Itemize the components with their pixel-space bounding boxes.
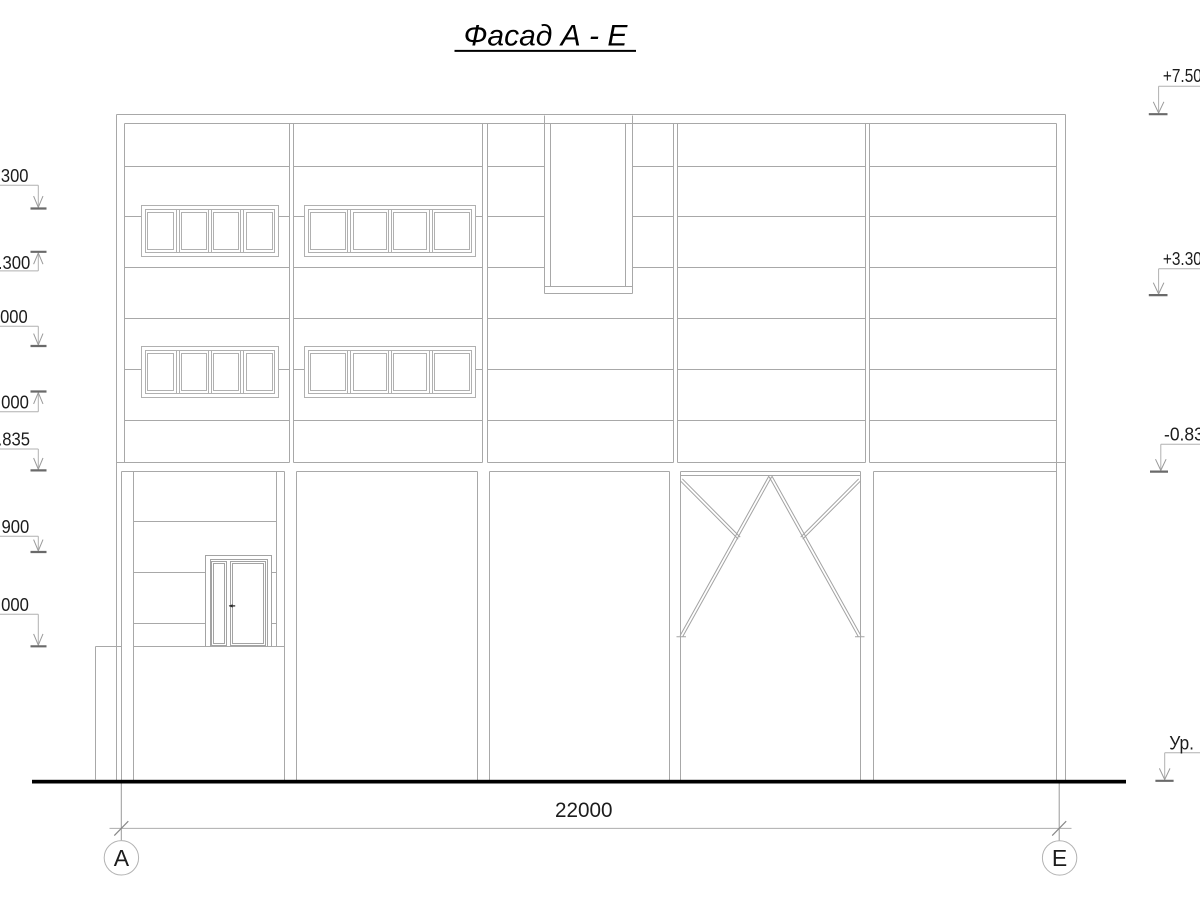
svg-text:Е: Е: [1052, 845, 1067, 871]
svg-text:.835: .835: [0, 430, 30, 450]
svg-text:+7.500: +7.500: [1163, 66, 1200, 86]
svg-text:300: 300: [1, 166, 29, 186]
svg-text:А: А: [114, 845, 130, 871]
svg-text:.900: .900: [0, 517, 29, 537]
svg-text:.300: .300: [0, 253, 30, 273]
svg-text:-0.835: -0.835: [1164, 424, 1200, 444]
svg-text:.000: .000: [0, 393, 29, 413]
svg-text:.000: .000: [0, 595, 29, 615]
svg-text:000: 000: [0, 307, 28, 327]
svg-text:+3.300: +3.300: [1163, 249, 1200, 269]
svg-text:22000: 22000: [555, 798, 613, 822]
svg-text:Ур.: Ур.: [1169, 733, 1194, 754]
svg-text:Фасад А - Е: Фасад А - Е: [464, 20, 629, 53]
